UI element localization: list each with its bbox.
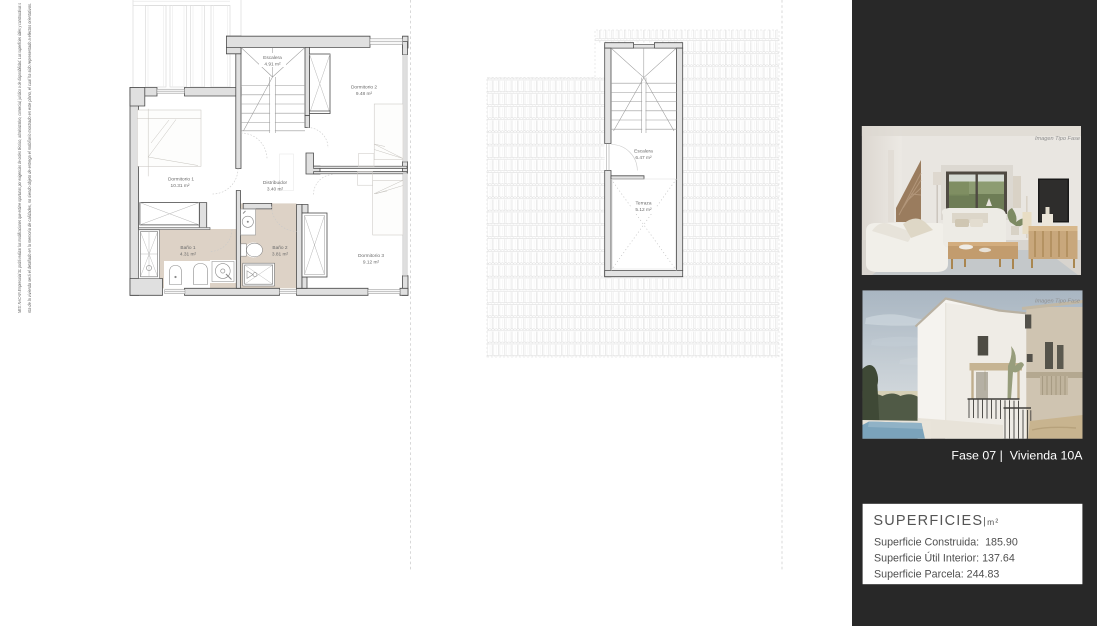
svg-text:9.48 m²: 9.48 m²	[356, 91, 373, 97]
svg-text:Escalera: Escalera	[263, 55, 282, 61]
svg-text:Imagen Tipo Fase: Imagen Tipo Fase	[1035, 136, 1080, 142]
svg-text:SUPERFICIES|m²: SUPERFICIES|m²	[873, 513, 999, 529]
svg-text:nta de la vivienda será el det: nta de la vivienda será el detallado en …	[27, 3, 32, 313]
svg-text:5.12 m²: 5.12 m²	[635, 207, 652, 213]
svg-text:3.40 m²: 3.40 m²	[267, 187, 284, 193]
svg-text:Dormitorio 3: Dormitorio 3	[358, 253, 384, 259]
svg-text:NES: NACAVI Empresarial SL pod: NES: NACAVI Empresarial SL podrá realiza…	[17, 2, 22, 313]
svg-text:3.81 m²: 3.81 m²	[272, 252, 289, 258]
svg-text:Terraza: Terraza	[636, 201, 652, 207]
svg-text:6.47 m²: 6.47 m²	[635, 155, 652, 161]
svg-text:Superficie Construida: 185.90: Superficie Construida: 185.90	[874, 536, 1018, 548]
svg-text:Imagen Tipo Fase: Imagen Tipo Fase	[1035, 299, 1080, 305]
svg-text:10.31 m²: 10.31 m²	[171, 183, 190, 189]
svg-text:Dormitorio 2: Dormitorio 2	[351, 85, 377, 91]
svg-text:4.91 m²: 4.91 m²	[264, 62, 281, 68]
svg-text:Baño 2: Baño 2	[272, 245, 288, 251]
svg-text:Baño 1: Baño 1	[180, 245, 196, 251]
svg-text:Fase 07 | Vivienda 10A: Fase 07 | Vivienda 10A	[951, 449, 1083, 463]
svg-text:Superficie Útil Interior: 137.: Superficie Útil Interior: 137.64	[874, 551, 1015, 564]
svg-text:Superficie Parcela: 244.83: Superficie Parcela: 244.83	[874, 568, 999, 580]
svg-text:Dormitorio 1: Dormitorio 1	[168, 177, 194, 183]
svg-text:Distribuidor: Distribuidor	[263, 180, 288, 186]
svg-text:Escalera: Escalera	[634, 149, 653, 155]
svg-text:9.12 m²: 9.12 m²	[363, 260, 380, 266]
svg-text:4.31 m²: 4.31 m²	[180, 252, 197, 258]
